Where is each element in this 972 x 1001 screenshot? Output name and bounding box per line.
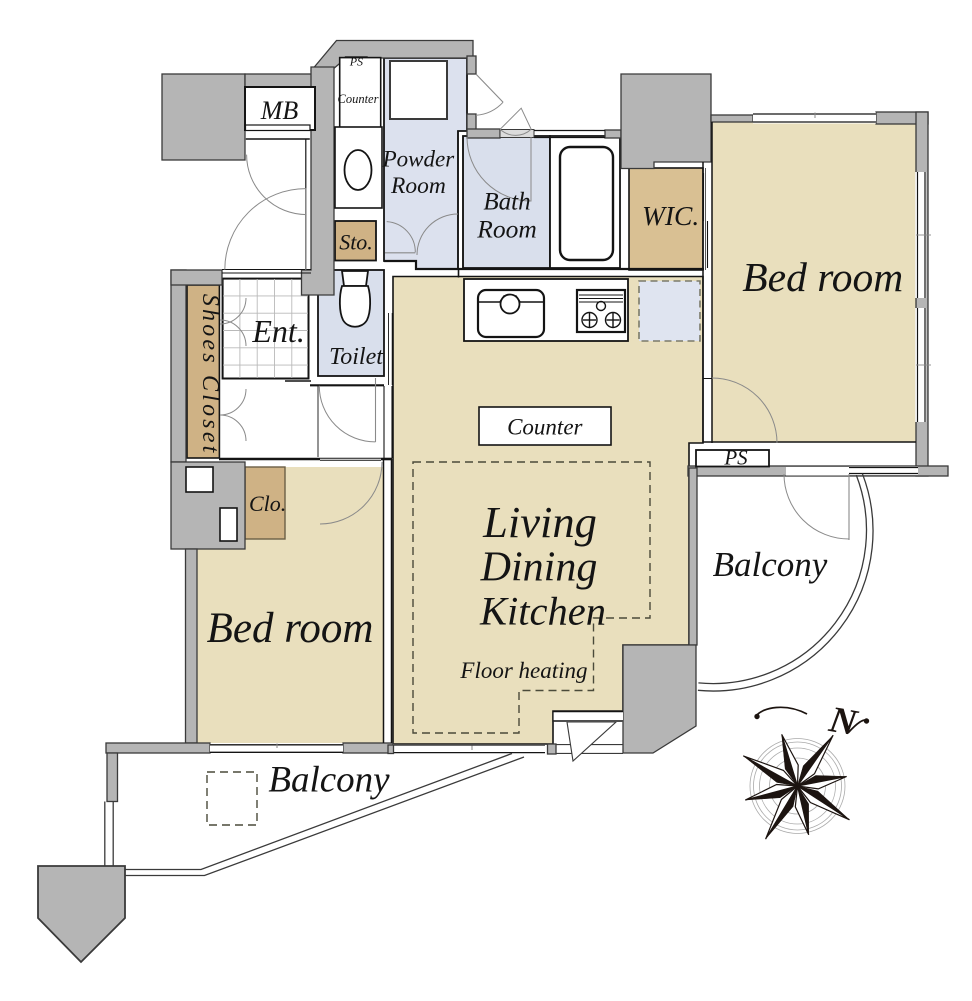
svg-text:Counter: Counter: [507, 415, 583, 440]
svg-text:Bath: Bath: [483, 189, 530, 216]
svg-text:Ent.: Ent.: [251, 313, 304, 349]
svg-text:Balcony: Balcony: [268, 760, 390, 801]
svg-text:Shoes Closet: Shoes Closet: [197, 294, 223, 456]
svg-text:PS: PS: [723, 446, 748, 470]
svg-text:Dining: Dining: [480, 545, 598, 591]
svg-text:Toilet: Toilet: [329, 344, 384, 370]
svg-text:Clo.: Clo.: [249, 491, 286, 516]
svg-text:Powder: Powder: [382, 147, 456, 172]
svg-text:Bed room: Bed room: [207, 605, 374, 652]
svg-text:Room: Room: [476, 215, 537, 244]
svg-text:MB: MB: [260, 96, 299, 125]
svg-text:Living: Living: [482, 497, 597, 547]
svg-text:Sto.: Sto.: [339, 230, 373, 255]
svg-text:Floor heating: Floor heating: [459, 658, 587, 683]
svg-text:Room: Room: [390, 173, 446, 199]
svg-text:Kitchen: Kitchen: [479, 589, 606, 634]
svg-text:Counter: Counter: [338, 92, 379, 106]
svg-text:WIC.: WIC.: [642, 200, 699, 231]
svg-text:Balcony: Balcony: [713, 545, 828, 584]
svg-text:PS: PS: [349, 55, 363, 69]
svg-text:Bed room: Bed room: [742, 254, 903, 300]
